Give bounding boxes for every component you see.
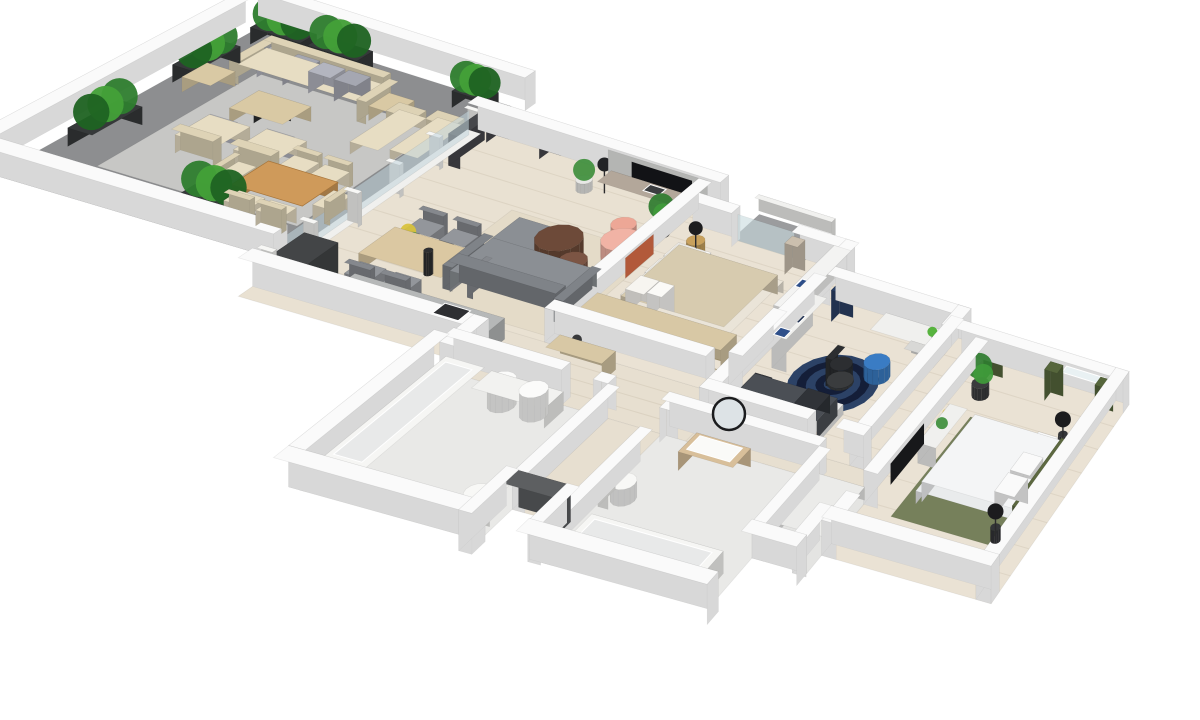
bedroom2-plant-leaves-2 bbox=[973, 364, 993, 384]
floor-plan-page bbox=[0, 0, 1200, 720]
dining-candle bbox=[424, 248, 434, 277]
kids-stool bbox=[864, 354, 891, 385]
bath1-sink-2 bbox=[519, 381, 548, 423]
apartment-3d-floor-plan bbox=[0, 0, 1200, 720]
bath2-round-mirror bbox=[713, 398, 745, 430]
living-plant-leaves bbox=[573, 159, 595, 181]
plan-root bbox=[0, 0, 1129, 625]
bedroom2-flowers-green bbox=[936, 417, 948, 429]
